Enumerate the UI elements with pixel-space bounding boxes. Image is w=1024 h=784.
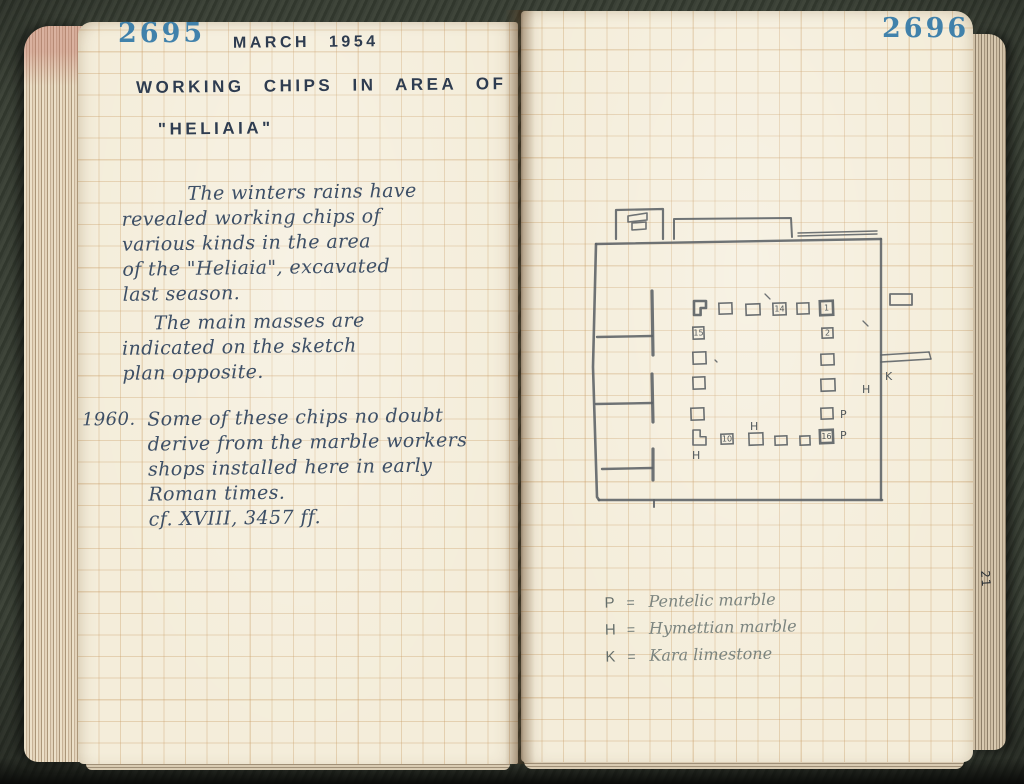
plan-wall <box>632 222 646 230</box>
plan-chip-mass <box>746 304 760 315</box>
handwritten-line: last season. <box>123 277 523 308</box>
plan-wall <box>596 403 652 404</box>
later-note-1960: Some of these chips no doubt derive from… <box>147 402 519 532</box>
page-title-line2: "HELIAIA" <box>158 118 274 139</box>
plan-wall <box>715 360 717 362</box>
plan-wall <box>881 359 931 362</box>
right-folio-number: 2696 <box>882 13 969 44</box>
legend-symbol: P <box>604 594 626 611</box>
plan-wall <box>890 294 912 305</box>
plan-material-label: P <box>840 429 847 442</box>
plan-material-label: H <box>750 420 758 433</box>
plan-mass-number: 2 <box>825 329 830 338</box>
legend-meaning: Pentelic marble <box>648 590 775 611</box>
legend-equals: = <box>627 621 649 637</box>
plan-chip-mass <box>719 303 732 314</box>
plan-material-label: K <box>885 370 893 383</box>
plan-wall <box>597 336 652 337</box>
plan-chip-mass <box>800 436 810 445</box>
plan-mass-number: 1 <box>824 304 829 313</box>
plan-chip-mass <box>693 352 706 364</box>
handwritten-line: derive from the marble workers <box>147 427 517 457</box>
plan-wall <box>863 321 868 326</box>
plan-wall <box>798 234 877 236</box>
left-folio-number: 2695 <box>118 18 205 49</box>
plan-wall <box>929 352 931 359</box>
plan-mass-number: 16 <box>821 432 831 441</box>
plan-mass-number: 14 <box>774 305 784 314</box>
plan-chip-mass <box>693 430 706 445</box>
legend-symbol: H <box>605 621 627 638</box>
legend-equals: = <box>627 648 649 664</box>
sketch-plan: 1411521016KHPPHH <box>579 187 963 531</box>
plan-mass-number: 10 <box>722 435 732 444</box>
plan-wall <box>881 352 929 355</box>
plan-material-label: P <box>840 408 847 421</box>
plan-mass-number: 15 <box>693 329 703 338</box>
legend-equals: = <box>626 594 648 610</box>
plan-wall <box>628 213 647 222</box>
plan-chip-mass <box>694 301 706 315</box>
plan-chip-mass <box>693 377 705 389</box>
handwritten-line: cf. XVIII, 3457 ff. <box>149 502 519 532</box>
plan-wall <box>652 291 653 355</box>
legend-symbol: K <box>605 648 627 665</box>
legend-row-hymettian: H = Hymettian marble <box>605 616 797 646</box>
plan-material-label: H <box>862 383 870 396</box>
plan-wall <box>652 374 653 422</box>
fore-edge-marking: 21 <box>978 570 993 588</box>
legend-row-pentelic: P = Pentelic marble <box>604 589 796 619</box>
plan-wall <box>602 468 652 469</box>
plan-chip-mass <box>821 379 835 391</box>
plan-wall <box>798 231 877 233</box>
legend-meaning: Hymettian marble <box>649 616 797 638</box>
plan-chip-mass <box>691 408 704 420</box>
plan-wall <box>674 218 792 239</box>
notebook-photo: 2695 MARCH 1954 WORKING CHIPS IN AREA OF… <box>0 0 1024 784</box>
binding-gutter <box>505 10 535 764</box>
legend-meaning: Kara limestone <box>649 644 772 665</box>
right-page: 2696 1411521016KHPPHH P = Pentelic marbl… <box>521 11 973 762</box>
paragraph-1: The winters rains have revealed working … <box>121 177 523 308</box>
handwritten-line: plan opposite. <box>122 356 522 387</box>
right-page-stack-edge <box>970 34 1006 750</box>
legend-row-kara: K = Kara limestone <box>605 643 797 673</box>
plan-chip-mass <box>775 436 787 445</box>
plan-wall <box>765 294 770 299</box>
plan-chip-mass <box>797 303 809 314</box>
paragraph-2: The main masses are indicated on the ske… <box>121 306 522 387</box>
plan-wall <box>593 244 599 500</box>
date-heading: MARCH 1954 <box>233 33 379 53</box>
plan-legend: P = Pentelic marble H = Hymettian marble… <box>604 589 797 673</box>
left-page: 2695 MARCH 1954 WORKING CHIPS IN AREA OF… <box>78 22 518 764</box>
left-page-stack-edge <box>24 26 82 762</box>
plan-wall <box>596 239 881 244</box>
plan-material-label: H <box>692 449 700 462</box>
plan-chip-mass <box>821 354 834 365</box>
page-title-line1: WORKING CHIPS IN AREA OF <box>136 74 507 98</box>
plan-chip-mass <box>749 433 763 445</box>
plan-chip-mass <box>821 408 833 419</box>
marginal-year: 1960. <box>82 407 136 433</box>
